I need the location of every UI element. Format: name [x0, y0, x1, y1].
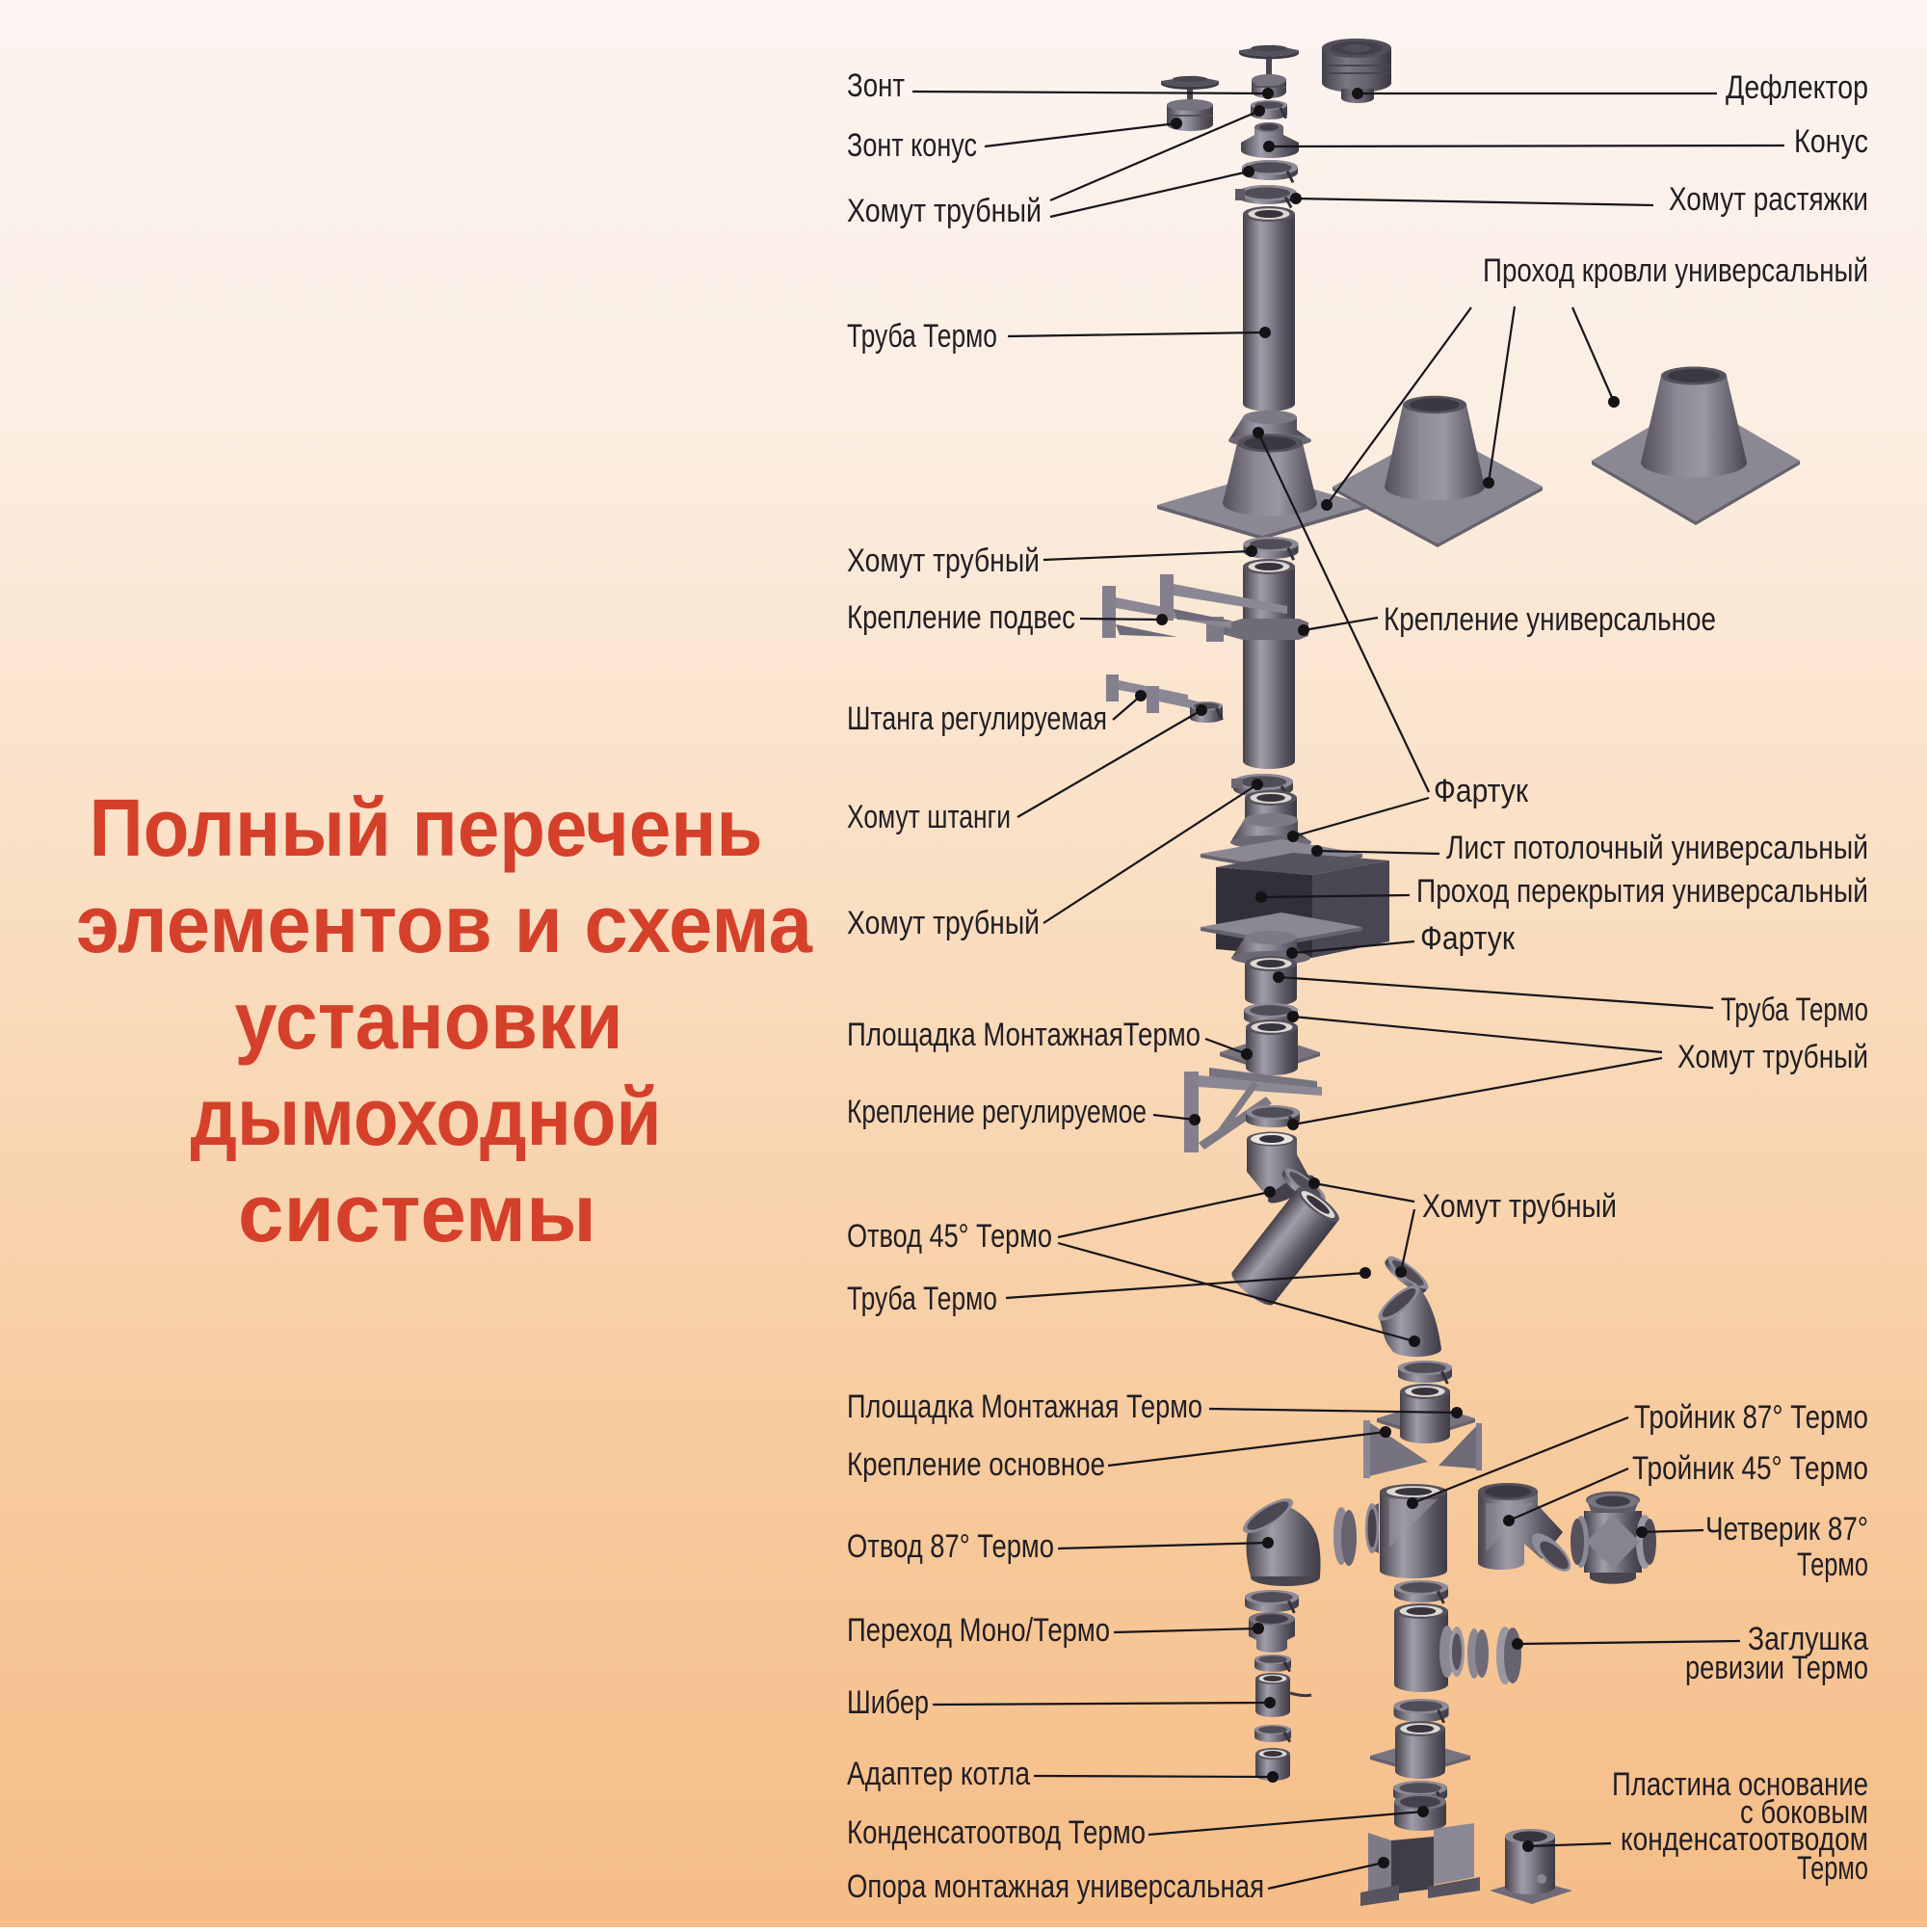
svg-text:Опора монтажная универсальная: Опора монтажная универсальная: [847, 1868, 1264, 1905]
svg-text:Труба Термо: Труба Термо: [847, 1281, 997, 1317]
svg-text:Труба Термо: Труба Термо: [1721, 992, 1868, 1028]
svg-text:Фартук: Фартук: [1420, 920, 1516, 957]
svg-text:Фартук: Фартук: [1434, 773, 1529, 809]
svg-text:Термо: Термо: [1797, 1547, 1868, 1583]
svg-text:Площадка Монтажная Термо: Площадка Монтажная Термо: [847, 1389, 1202, 1425]
svg-text:дымоходной: дымоходной: [191, 1072, 662, 1162]
svg-text:Хомут трубный: Хомут трубный: [847, 543, 1040, 579]
svg-text:Хомут трубный: Хомут трубный: [1422, 1188, 1617, 1225]
svg-text:Хомут трубный: Хомут трубный: [1677, 1039, 1868, 1075]
svg-text:Хомут растяжки: Хомут растяжки: [1669, 181, 1868, 218]
svg-text:Отвод 45° Термо: Отвод 45° Термо: [847, 1218, 1052, 1255]
svg-text:Крепление подвес: Крепление подвес: [847, 599, 1075, 636]
svg-text:Труба Термо: Труба Термо: [847, 318, 997, 355]
svg-text:Зонт: Зонт: [847, 67, 905, 104]
svg-text:Крепление универсальное: Крепление универсальное: [1384, 601, 1716, 638]
svg-text:Конденсатоотвод Термо: Конденсатоотвод Термо: [847, 1814, 1146, 1851]
svg-text:Адаптер котла: Адаптер котла: [847, 1756, 1030, 1792]
svg-text:Полный перечень: Полный перечень: [90, 782, 763, 873]
svg-text:установки: установки: [235, 975, 623, 1066]
svg-text:Крепление регулируемое: Крепление регулируемое: [847, 1094, 1147, 1130]
svg-text:системы: системы: [238, 1168, 596, 1258]
svg-text:Проход перекрытия универсальны: Проход перекрытия универсальный: [1416, 873, 1868, 910]
svg-text:Штанга регулируемая: Штанга регулируемая: [847, 701, 1107, 737]
svg-text:Хомут штанги: Хомут штанги: [847, 799, 1011, 835]
svg-text:Четверик 87°: Четверик 87°: [1705, 1511, 1868, 1548]
svg-text:Отвод 87° Термо: Отвод 87° Термо: [847, 1528, 1054, 1565]
svg-text:элементов и схема: элементов и схема: [76, 879, 813, 969]
svg-text:Шибер: Шибер: [847, 1684, 929, 1721]
svg-text:Хомут трубный: Хомут трубный: [847, 193, 1042, 229]
svg-text:Крепление основное: Крепление основное: [847, 1446, 1105, 1483]
svg-text:Проход кровли универсальный: Проход кровли универсальный: [1483, 252, 1868, 289]
svg-text:Термо: Термо: [1797, 1850, 1868, 1887]
svg-text:Зонт конус: Зонт конус: [847, 127, 977, 164]
svg-text:Конус: Конус: [1794, 123, 1868, 160]
svg-text:Хомут трубный: Хомут трубный: [847, 905, 1040, 941]
svg-text:Переход Моно/Термо: Переход Моно/Термо: [847, 1612, 1110, 1649]
svg-text:ревизии Термо: ревизии Термо: [1685, 1650, 1868, 1686]
svg-text:Дефлектор: Дефлектор: [1726, 69, 1868, 106]
svg-text:Площадка МонтажнаяТермо: Площадка МонтажнаяТермо: [847, 1017, 1201, 1053]
svg-text:Лист потолочный универсальный: Лист потолочный универсальный: [1446, 830, 1868, 866]
svg-text:Тройник 45° Термо: Тройник 45° Термо: [1632, 1450, 1868, 1487]
svg-text:Тройник 87° Термо: Тройник 87° Термо: [1634, 1399, 1868, 1436]
